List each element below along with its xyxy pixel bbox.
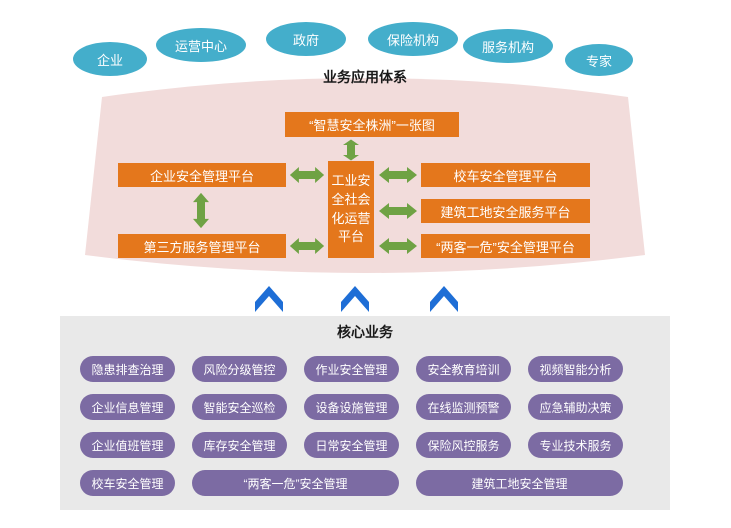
stakeholder-label: 服务机构 xyxy=(482,37,534,56)
core-business-item: 企业信息管理 xyxy=(80,394,175,420)
core-business-item: 安全教育培训 xyxy=(416,356,511,382)
platform-enterprise-safety: 企业安全管理平台 xyxy=(118,163,286,187)
core-business-item: “两客一危”安全管理 xyxy=(192,470,399,496)
core-business-item: 保险风控服务 xyxy=(416,432,511,458)
platform-smart-safety-map: “智慧安全株洲”一张图 xyxy=(285,112,459,137)
core-business-item: 库存安全管理 xyxy=(192,432,287,458)
platform-third-party-service: 第三方服务管理平台 xyxy=(118,234,286,258)
core-business-item: 设备设施管理 xyxy=(304,394,399,420)
core-business-row: 企业值班管理 库存安全管理 日常安全管理 保险风控服务 专业技术服务 xyxy=(60,432,670,458)
stakeholder-label: 企业 xyxy=(97,50,123,69)
core-business-item: 校车安全管理 xyxy=(80,470,175,496)
application-system-title: 业务应用体系 xyxy=(85,67,645,87)
core-business-panel: 核心业务 隐患排查治理 风险分级管控 作业安全管理 安全教育培训 视频智能分析 … xyxy=(60,316,670,510)
stakeholder-label: 运营中心 xyxy=(175,36,227,55)
core-business-item: 专业技术服务 xyxy=(528,432,623,458)
double-arrow-horizontal-icon xyxy=(378,237,418,255)
core-business-row: 校车安全管理 “两客一危”安全管理 建筑工地安全管理 xyxy=(60,470,670,496)
stakeholder-insurance: 保险机构 xyxy=(368,22,458,56)
core-business-row: 企业信息管理 智能安全巡检 设备设施管理 在线监测预警 应急辅助决策 xyxy=(60,394,670,420)
core-business-item: 日常安全管理 xyxy=(304,432,399,458)
double-arrow-horizontal-icon xyxy=(289,166,325,184)
core-business-item: 在线监测预警 xyxy=(416,394,511,420)
core-business-item: 企业值班管理 xyxy=(80,432,175,458)
core-business-item: 建筑工地安全管理 xyxy=(416,470,623,496)
up-chevron-icon xyxy=(429,285,459,313)
up-chevron-icon xyxy=(254,285,284,313)
stakeholder-label: 保险机构 xyxy=(387,30,439,49)
core-business-item: 隐患排查治理 xyxy=(80,356,175,382)
diagram-canvas: 企业 运营中心 政府 保险机构 服务机构 专家 业务应用体系 “智慧安全株洲”一… xyxy=(0,0,731,528)
stakeholder-service-agency: 服务机构 xyxy=(463,29,553,63)
double-arrow-horizontal-icon xyxy=(378,202,418,220)
core-business-row: 隐患排查治理 风险分级管控 作业安全管理 安全教育培训 视频智能分析 xyxy=(60,356,670,382)
stakeholder-operations-center: 运营中心 xyxy=(156,28,246,62)
platform-construction-site-safety: 建筑工地安全服务平台 xyxy=(421,199,590,223)
double-arrow-horizontal-icon xyxy=(378,166,418,184)
core-business-item: 作业安全管理 xyxy=(304,356,399,382)
core-business-item: 应急辅助决策 xyxy=(528,394,623,420)
core-business-title: 核心业务 xyxy=(60,322,670,342)
stakeholder-government: 政府 xyxy=(266,22,346,56)
platform-school-bus-safety: 校车安全管理平台 xyxy=(421,163,590,187)
stakeholder-label: 政府 xyxy=(293,30,319,49)
platform-two-passenger-one-danger: “两客一危”安全管理平台 xyxy=(421,234,590,258)
core-business-item: 风险分级管控 xyxy=(192,356,287,382)
double-arrow-horizontal-icon xyxy=(289,237,325,255)
core-business-item: 智能安全巡检 xyxy=(192,394,287,420)
core-business-item: 视频智能分析 xyxy=(528,356,623,382)
double-arrow-vertical-icon xyxy=(192,192,210,229)
up-chevron-icon xyxy=(340,285,370,313)
platform-industrial-safety-operation: 工业安 全社会 化运营 平台 xyxy=(328,161,374,258)
double-arrow-vertical-icon xyxy=(342,139,360,161)
